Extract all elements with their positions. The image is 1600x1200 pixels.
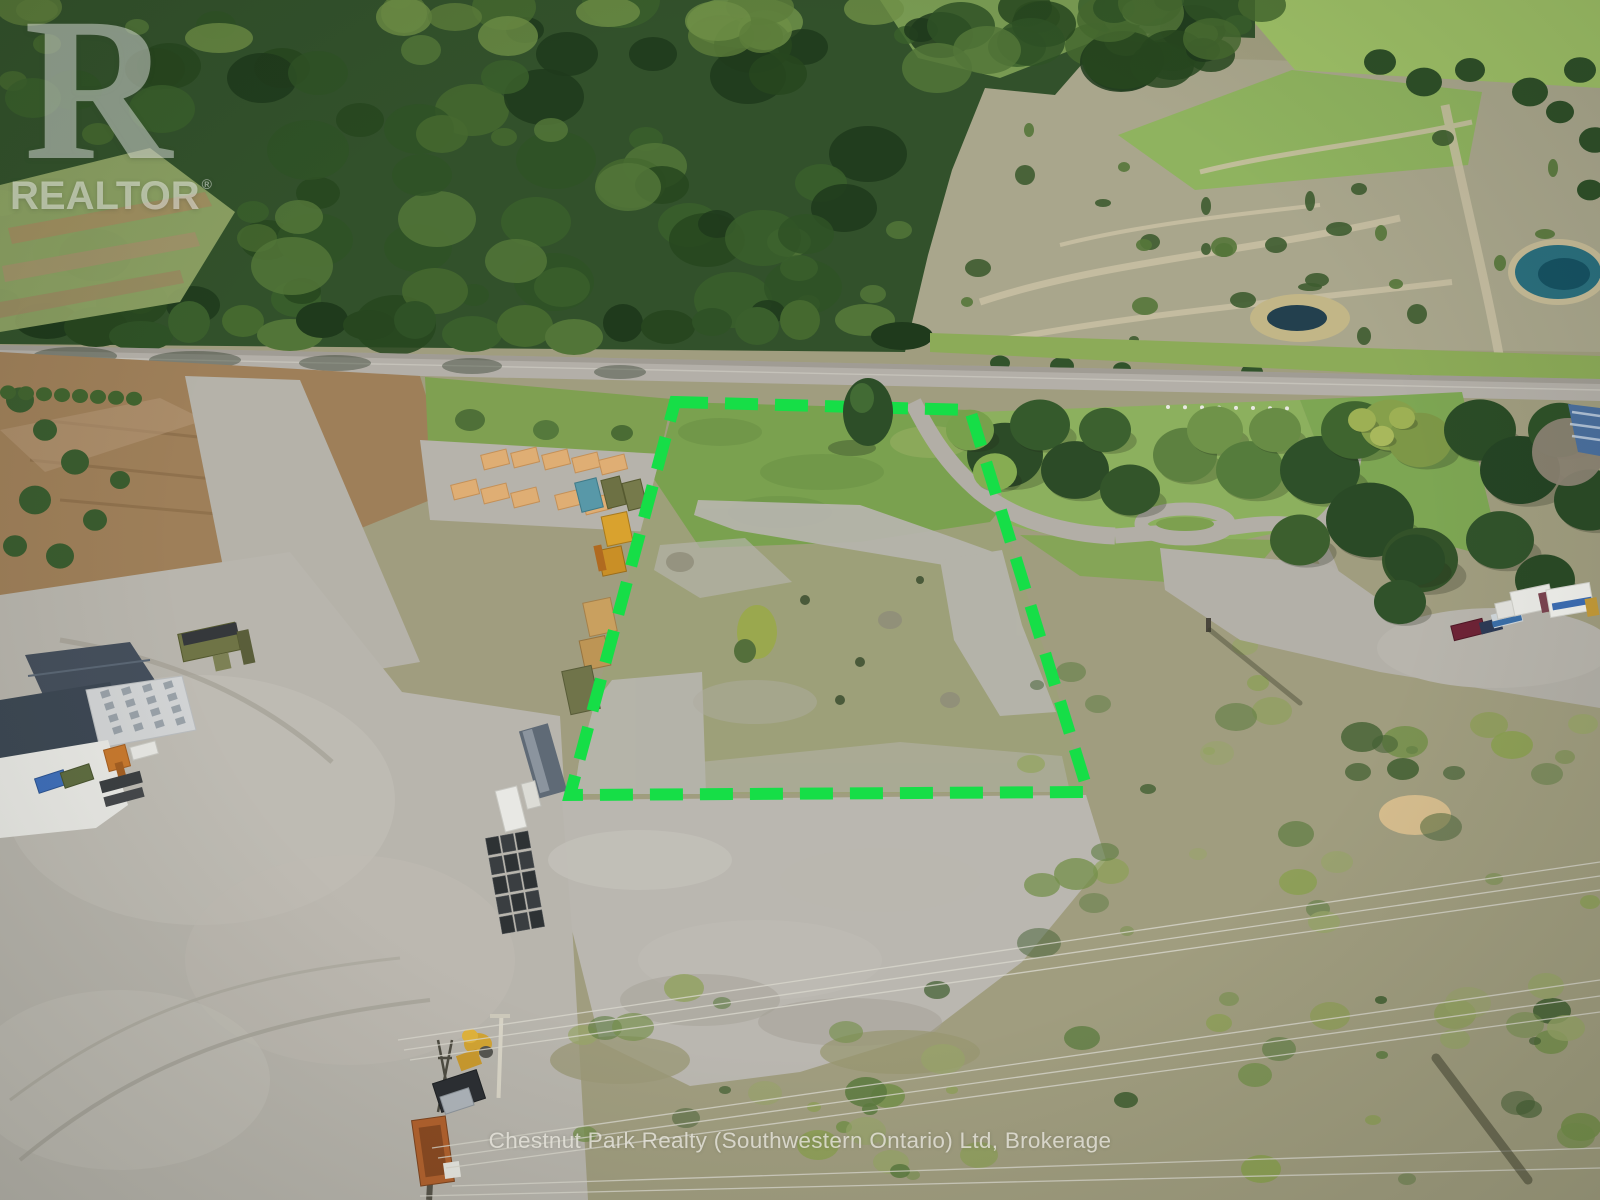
dark-crate: [489, 856, 505, 875]
forest-tree-blob: [288, 51, 348, 95]
forest-tree-blob: [401, 35, 441, 65]
scrub-bush: [1200, 741, 1234, 765]
scrub-bush: [1470, 712, 1508, 738]
forest-tree-blob: [1082, 31, 1164, 89]
scrub-bush: [1085, 695, 1111, 713]
scrub-bush: [1189, 848, 1207, 860]
forest-edge-tree: [545, 319, 603, 355]
scrub-bush: [1372, 735, 1398, 753]
hill-shrub: [1136, 239, 1152, 251]
hedge-tree: [1406, 68, 1442, 97]
hill-shrub: [1494, 255, 1506, 271]
guard-post: [1166, 405, 1170, 409]
scrub-bush: [1555, 750, 1575, 764]
forest-edge-tree: [497, 305, 553, 347]
forest-tree-blob: [595, 163, 661, 211]
scrub-bush: [1215, 703, 1257, 731]
aerial-property-photo: R REALTOR ® Chestnut Park Realty (Southw…: [0, 0, 1600, 1200]
dark-crate: [507, 873, 523, 892]
driveway-island: [1156, 517, 1214, 531]
forest-tree-blob: [886, 221, 912, 239]
hill-shrub: [1351, 183, 1367, 195]
scrub-bush: [1420, 813, 1462, 841]
guard-post: [1251, 406, 1255, 410]
forest-tree-blob: [227, 53, 297, 103]
hill-shrub: [961, 297, 973, 307]
scrub-bush: [1238, 1063, 1272, 1087]
hill-shrub: [1095, 199, 1111, 207]
scrub-bush: [1375, 996, 1387, 1004]
hedge-tree: [1546, 101, 1574, 123]
realtor-watermark: R REALTOR ®: [10, 10, 212, 219]
scrub-bush: [807, 1102, 821, 1112]
forest-edge-tree: [168, 301, 210, 343]
dark-crate: [492, 876, 508, 895]
scrub-bush: [1321, 851, 1353, 873]
dark-crate: [496, 895, 512, 914]
small-conifer: [83, 509, 107, 531]
tree-cluster: [1348, 408, 1376, 432]
tree-cluster: [1370, 426, 1394, 446]
forest-edge-tree: [296, 302, 348, 338]
deciduous-patch: [739, 19, 783, 53]
scrub-bush: [1091, 843, 1119, 861]
forest-edge-tree: [735, 307, 779, 345]
forest-tree-blob: [336, 103, 384, 137]
tree-cluster: [1010, 400, 1070, 451]
scrub-bush: [1568, 714, 1598, 734]
small-conifer: [3, 535, 27, 557]
forest-tree-blob: [275, 200, 323, 234]
forest-edge-tree: [780, 300, 820, 340]
scrub-bush: [829, 1021, 863, 1043]
forest-tree-blob: [481, 60, 529, 94]
scrub-bush: [1531, 763, 1563, 785]
hill-shrub: [1326, 222, 1352, 236]
hill-shrub: [1407, 304, 1427, 324]
forest-edge-tree: [641, 310, 695, 344]
small-conifer: [61, 449, 89, 474]
hill-shrub: [1211, 237, 1237, 257]
scrub-bush: [1365, 1115, 1381, 1125]
scrub-bush: [1079, 893, 1109, 913]
guard-post: [1183, 405, 1187, 409]
dark-crate: [518, 851, 534, 870]
scrub-bush: [1310, 1002, 1350, 1030]
scrub-bush: [1252, 697, 1292, 725]
scrub-bush: [921, 1044, 965, 1074]
forest-edge-tree: [394, 301, 436, 339]
scrub-bush: [1398, 1173, 1416, 1185]
hill-shrub: [1265, 237, 1287, 253]
scrub-bush: [845, 1077, 887, 1107]
small-conifer: [19, 486, 51, 515]
hill-shrub: [1375, 225, 1387, 241]
forest-edge-tree: [343, 310, 395, 340]
hedge-pine: [90, 390, 106, 404]
scrub-bush: [1093, 858, 1129, 884]
forest-tree-blob: [536, 32, 598, 76]
hedge-tree: [1455, 58, 1485, 82]
forest-edge-tree: [109, 321, 173, 351]
hill-shrub: [1535, 229, 1555, 239]
forest-tree-blob: [860, 285, 886, 303]
forest-tree-blob: [629, 37, 677, 71]
scrub-bush: [1219, 992, 1239, 1006]
forest-tree-blob: [267, 120, 349, 180]
hill-shrub: [1389, 279, 1403, 289]
scrub-bush: [1406, 746, 1418, 754]
pond-small-reeds: [1250, 294, 1350, 342]
hill-shrub: [1548, 159, 1558, 177]
containers: [575, 476, 647, 512]
tree-cluster: [1389, 407, 1415, 429]
scrub-bush: [1114, 1092, 1138, 1108]
hill-shrub: [1024, 123, 1034, 137]
tree-cluster: [1374, 580, 1426, 624]
deciduous-patch: [478, 16, 538, 56]
hill-shrub: [1201, 197, 1211, 215]
hedge-pine: [72, 389, 88, 403]
hedge-pine: [108, 391, 124, 405]
scrub-bush: [1376, 1051, 1388, 1059]
dark-crate: [500, 834, 516, 853]
dark-crate: [485, 836, 501, 855]
hill-shrub: [1201, 243, 1211, 255]
tree-cluster: [1466, 511, 1534, 569]
dark-crate: [515, 831, 531, 850]
forest-tree-blob: [780, 255, 818, 281]
dark-crate: [514, 912, 530, 931]
scrub-bush: [1056, 662, 1086, 682]
dark-crate: [522, 870, 538, 889]
forest-tree-blob: [491, 128, 517, 146]
hill-shrub: [1432, 130, 1454, 146]
forest-tree-blob: [1183, 18, 1241, 60]
forest-tree-blob: [485, 239, 547, 283]
deciduous-patch: [428, 3, 482, 31]
hill-shrub: [1015, 165, 1035, 185]
scrub-bush: [1580, 895, 1600, 909]
small-conifer: [110, 471, 130, 489]
realtor-logo-r: R: [24, 10, 212, 170]
forest-tree-blob: [953, 26, 1021, 74]
dark-crate: [511, 893, 527, 912]
scrub-bush: [1054, 858, 1098, 890]
terrain-layer: [0, 0, 1600, 1200]
hedge-tree: [1364, 49, 1396, 75]
scrub-bush: [1140, 784, 1156, 794]
hedge-pine: [126, 392, 142, 406]
forest-edge-tree: [692, 308, 732, 336]
dark-crate: [529, 910, 545, 929]
forest-tree-blob: [749, 53, 807, 95]
registered-trademark-symbol: ®: [202, 176, 212, 192]
forest-tree-blob: [392, 154, 452, 196]
dark-crate: [499, 915, 515, 934]
realtor-logo-wordmark: REALTOR ®: [10, 174, 212, 219]
scrub-bush: [1279, 869, 1317, 895]
forest-tree-blob: [534, 118, 568, 142]
forest-edge-tree: [442, 316, 502, 352]
hill-shrub: [965, 259, 991, 277]
forest-edge-tree: [603, 304, 643, 342]
hedge-tree: [1512, 78, 1548, 107]
hill-shrub: [1305, 191, 1315, 211]
tree-cluster: [1079, 408, 1131, 452]
forest-tree-blob: [237, 201, 269, 223]
dark-crate: [525, 890, 541, 909]
brokerage-watermark: Chestnut Park Realty (Southwestern Ontar…: [0, 1128, 1600, 1154]
scrub-bush: [1030, 680, 1044, 690]
tree-cluster: [1100, 465, 1160, 516]
guard-post: [1234, 406, 1238, 410]
forest-tree-blob: [778, 214, 834, 254]
scrub-bush: [1345, 763, 1371, 781]
scrub-bush: [1506, 1012, 1544, 1038]
hill-shrub: [1357, 327, 1371, 345]
scrub-bush: [1529, 1037, 1541, 1045]
scrub-bush: [1443, 766, 1465, 780]
tree-cluster: [1385, 535, 1445, 586]
hedge-pine: [0, 385, 16, 399]
dark-crate: [504, 853, 520, 872]
realtor-logo-text: REALTOR: [10, 174, 200, 219]
forest-tree-blob: [251, 237, 333, 295]
scrub-bush: [1206, 1014, 1232, 1032]
hedge-tree: [1564, 57, 1596, 83]
white-cube: [443, 1161, 461, 1179]
scrub-bush: [1017, 755, 1045, 773]
scrub-bush: [1501, 1091, 1535, 1115]
hedge-pine: [54, 388, 70, 402]
small-conifer: [33, 419, 57, 441]
hill-shrub: [1118, 162, 1130, 172]
scrub-bush: [1387, 758, 1419, 780]
hedge-pine: [36, 387, 52, 401]
tree-cluster: [1270, 515, 1330, 566]
hill-shrub: [1230, 292, 1256, 308]
forest-edge-tree: [871, 322, 933, 350]
scrub-bush: [719, 1086, 731, 1094]
hedge-pine: [18, 386, 34, 400]
hill-shrub: [1298, 283, 1322, 291]
scrub-bush: [1278, 821, 1314, 847]
hill-shrub: [1132, 297, 1158, 315]
small-conifer: [46, 543, 74, 568]
scrub-bush: [1064, 1026, 1100, 1050]
forest-tree-blob: [534, 267, 590, 307]
forest-tree-blob: [398, 191, 476, 247]
forest-tree-blob: [416, 115, 468, 153]
